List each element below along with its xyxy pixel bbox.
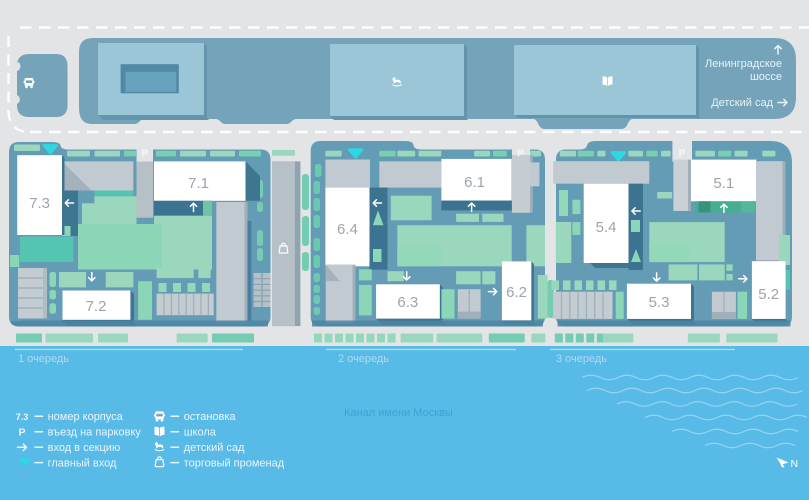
svg-text:7.2: 7.2 <box>86 298 107 315</box>
svg-text:остановка: остановка <box>184 411 237 423</box>
svg-text:P: P <box>18 427 25 439</box>
svg-text:7.3: 7.3 <box>29 195 50 212</box>
svg-text:Канал имени Москвы: Канал имени Москвы <box>344 407 453 419</box>
svg-text:номер корпуса: номер корпуса <box>48 411 124 423</box>
svg-text:6.4: 6.4 <box>337 221 358 238</box>
svg-text:3 очередь: 3 очередь <box>556 353 607 365</box>
svg-text:P: P <box>141 149 148 160</box>
svg-text:Детский сад: Детский сад <box>711 97 773 109</box>
svg-text:2 очередь: 2 очередь <box>338 353 389 365</box>
svg-text:5.4: 5.4 <box>596 219 617 236</box>
svg-text:школа: школа <box>184 427 217 439</box>
svg-text:шоссе: шоссе <box>750 71 782 83</box>
svg-text:6.1: 6.1 <box>464 174 485 191</box>
svg-text:вход в секцию: вход в секцию <box>48 442 121 454</box>
svg-text:P: P <box>679 149 686 160</box>
svg-text:въезд на парковку: въезд на парковку <box>48 427 142 439</box>
svg-text:P: P <box>517 149 524 160</box>
svg-text:детский сад: детский сад <box>184 442 245 454</box>
svg-text:5.1: 5.1 <box>713 175 734 192</box>
svg-text:главный вход: главный вход <box>48 457 117 469</box>
svg-text:7.3: 7.3 <box>16 412 29 422</box>
svg-text:1 очередь: 1 очередь <box>18 353 69 365</box>
svg-text:Ленинградское: Ленинградское <box>705 58 782 70</box>
svg-text:5.2: 5.2 <box>758 286 779 303</box>
svg-text:5.3: 5.3 <box>649 294 670 311</box>
svg-text:торговый променад: торговый променад <box>184 457 285 469</box>
svg-text:6.3: 6.3 <box>397 294 418 311</box>
svg-text:N: N <box>791 458 799 470</box>
svg-text:6.2: 6.2 <box>506 284 527 301</box>
svg-text:7.1: 7.1 <box>188 175 209 192</box>
